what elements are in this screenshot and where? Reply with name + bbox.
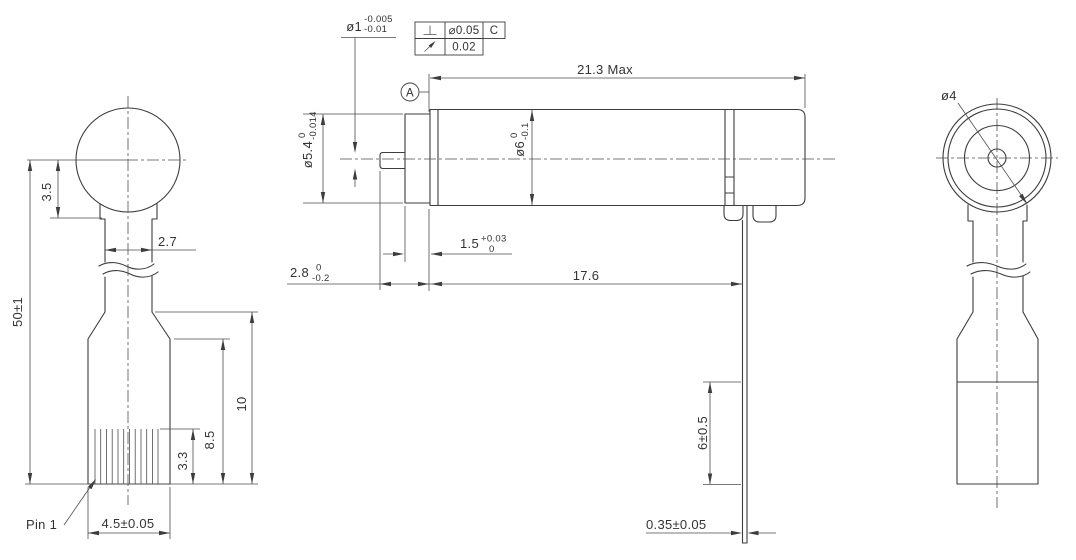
connector-pins xyxy=(95,429,158,484)
svg-text:ø4: ø4 xyxy=(941,88,957,103)
dim-overall-length: 50±1 xyxy=(10,297,25,327)
dim-body-dia: ø6 0 -0.1 xyxy=(509,110,534,205)
end-ring xyxy=(725,110,734,206)
dim-shaft-extension: 2.8 0 -0.2 xyxy=(287,263,742,287)
arrowhead xyxy=(28,473,32,484)
dim-neck-width: 2.7 xyxy=(158,234,177,249)
max-length-lines xyxy=(429,74,805,112)
break-line-upper xyxy=(99,263,154,270)
arrowhead xyxy=(56,207,60,218)
svg-text:ø6: ø6 xyxy=(512,141,527,157)
arrowheads xyxy=(353,142,357,180)
dim-shaft-dia: ø1 -0.005 -0.01 xyxy=(341,14,396,187)
drawing-svg: 3.5 50±1 2.7 8.5 10 3.3 4.5±0.05 xyxy=(0,0,1076,560)
break-line-lower xyxy=(971,271,1030,278)
svg-text:3.3: 3.3 xyxy=(175,452,190,471)
svg-text:21.3 Max: 21.3 Max xyxy=(577,62,633,77)
svg-text:-0.01: -0.01 xyxy=(364,24,387,35)
end-view: ø4 xyxy=(936,88,1058,508)
side-view xyxy=(340,110,836,544)
connector-flare xyxy=(88,312,170,339)
connector-flare xyxy=(957,312,1038,339)
circular-runout-icon xyxy=(425,41,436,52)
front-view-dimensions: 3.5 50±1 2.7 8.5 10 3.3 4.5±0.05 xyxy=(10,160,258,539)
neck-lower xyxy=(105,276,152,312)
arrowheads xyxy=(393,252,442,256)
dim-pin-exposed: 3.3 xyxy=(175,452,190,471)
svg-text:-0.2: -0.2 xyxy=(312,273,330,284)
svg-text:0: 0 xyxy=(509,132,520,138)
arrowhead xyxy=(1019,194,1027,204)
svg-text:6±0.5: 6±0.5 xyxy=(695,416,710,450)
neck-lower xyxy=(973,276,1023,312)
perpendicularity-icon xyxy=(424,26,437,35)
dim-ball-offset: 3.5 xyxy=(39,183,54,202)
terminal-tab xyxy=(743,206,748,544)
dim-body-length: 17.6 xyxy=(431,268,742,286)
svg-text:50±1: 50±1 xyxy=(10,297,25,327)
dim-connector-upper: 8.5 xyxy=(202,431,217,450)
shaft-dia-lines xyxy=(341,38,396,188)
arrowhead xyxy=(105,248,116,252)
side-view-annotations: ø1 -0.005 -0.01 ⌀0.05 C 0.02 A xyxy=(287,14,805,535)
dim-terminal-thickness: 0.35±0.05 xyxy=(646,517,776,535)
svg-text:10: 10 xyxy=(234,396,249,411)
shaft xyxy=(380,153,405,169)
dim-connector-width: 4.5±0.05 xyxy=(102,516,155,531)
svg-text:0: 0 xyxy=(489,244,495,255)
pin1-label: Pin 1 xyxy=(26,517,57,532)
terminal-bump-1 xyxy=(724,206,743,221)
svg-text:-0.1: -0.1 xyxy=(520,122,531,140)
svg-text:-0.014: -0.014 xyxy=(308,111,319,140)
dim-boss-dia: ø5.4 0 -0.014 xyxy=(297,111,403,203)
dim-boss-length: 1.5 +0.03 0 xyxy=(383,234,512,257)
break-line-lower xyxy=(103,271,158,278)
svg-text:3.5: 3.5 xyxy=(39,183,54,202)
dim-terminal-length: 6±0.5 xyxy=(695,382,741,485)
mounting-boss xyxy=(405,114,430,203)
svg-text:8.5: 8.5 xyxy=(202,431,217,450)
arrowhead xyxy=(56,160,60,171)
neck-upper xyxy=(105,219,152,262)
front-view xyxy=(27,96,187,505)
dim-connector-width-lines xyxy=(88,487,170,539)
svg-text:0.35±0.05: 0.35±0.05 xyxy=(646,517,706,532)
arrowheads xyxy=(731,531,759,535)
end-cap xyxy=(734,110,805,206)
neck-upper xyxy=(973,221,1023,262)
svg-text:17.6: 17.6 xyxy=(573,268,600,283)
gdt-row1-tolerance: ⌀0.05 xyxy=(449,25,480,37)
svg-text:2.8: 2.8 xyxy=(290,265,309,280)
arrowhead xyxy=(141,248,152,252)
dim-connector-total: 10 xyxy=(234,396,249,411)
terminal-bump-2 xyxy=(753,206,776,223)
engineering-drawing: 3.5 50±1 2.7 8.5 10 3.3 4.5±0.05 xyxy=(0,0,1076,560)
datum-a: A xyxy=(401,83,429,101)
inner-dia-leader xyxy=(958,103,1027,204)
gdt-row2-tolerance: 0.02 xyxy=(452,42,476,54)
arrowhead xyxy=(28,160,32,171)
svg-text:1.5: 1.5 xyxy=(460,236,479,251)
connector-body xyxy=(957,339,1038,484)
svg-text:ø5.4: ø5.4 xyxy=(300,141,315,168)
svg-text:ø1: ø1 xyxy=(346,19,362,34)
svg-text:0: 0 xyxy=(316,263,322,274)
svg-text:0: 0 xyxy=(297,132,308,138)
motor-body xyxy=(430,110,734,206)
svg-text:+0.03: +0.03 xyxy=(481,234,507,245)
gdt-row1-datum: C xyxy=(490,25,499,37)
dim-max-length: 21.3 Max xyxy=(429,62,805,112)
datum-label: A xyxy=(406,88,414,100)
gdt-frame: ⌀0.05 C 0.02 xyxy=(415,22,505,55)
break-line-upper xyxy=(967,263,1026,270)
